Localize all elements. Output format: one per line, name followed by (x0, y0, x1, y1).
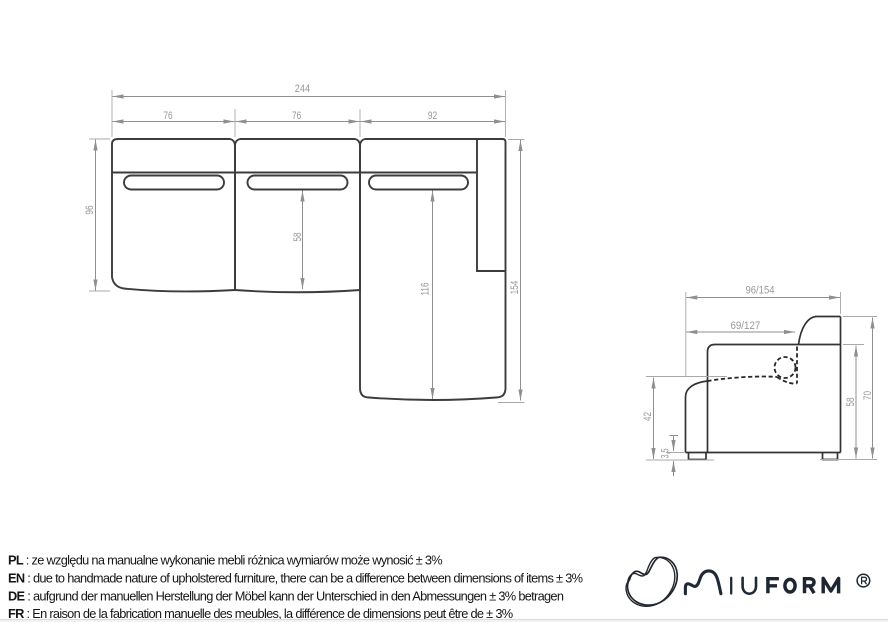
svg-text:154: 154 (509, 281, 521, 295)
svg-text:69/127: 69/127 (730, 320, 760, 332)
svg-text:116: 116 (420, 283, 432, 296)
svg-text:92: 92 (428, 110, 437, 122)
svg-text:244: 244 (295, 83, 310, 95)
svg-text:FR : En raison de la fabricati: FR : En raison de la fabrication manuell… (8, 606, 513, 621)
svg-text:76: 76 (163, 110, 172, 122)
svg-text:3,5: 3,5 (660, 449, 672, 459)
svg-text:EN : due to handmade nature of: EN : due to handmade nature of upholster… (8, 571, 583, 586)
svg-text:58: 58 (845, 397, 857, 406)
svg-text:58: 58 (292, 232, 304, 241)
svg-text:96: 96 (84, 205, 96, 214)
svg-text:96/154: 96/154 (746, 285, 775, 297)
svg-text:42: 42 (642, 412, 654, 421)
svg-text:DE : aufgrund der manuellen He: DE : aufgrund der manuellen Herstellung … (8, 589, 564, 604)
svg-text:76: 76 (292, 110, 301, 122)
svg-text:70: 70 (862, 391, 874, 400)
svg-text:PL : ze względu na manualne wy: PL : ze względu na manualne wykonanie me… (8, 553, 442, 568)
